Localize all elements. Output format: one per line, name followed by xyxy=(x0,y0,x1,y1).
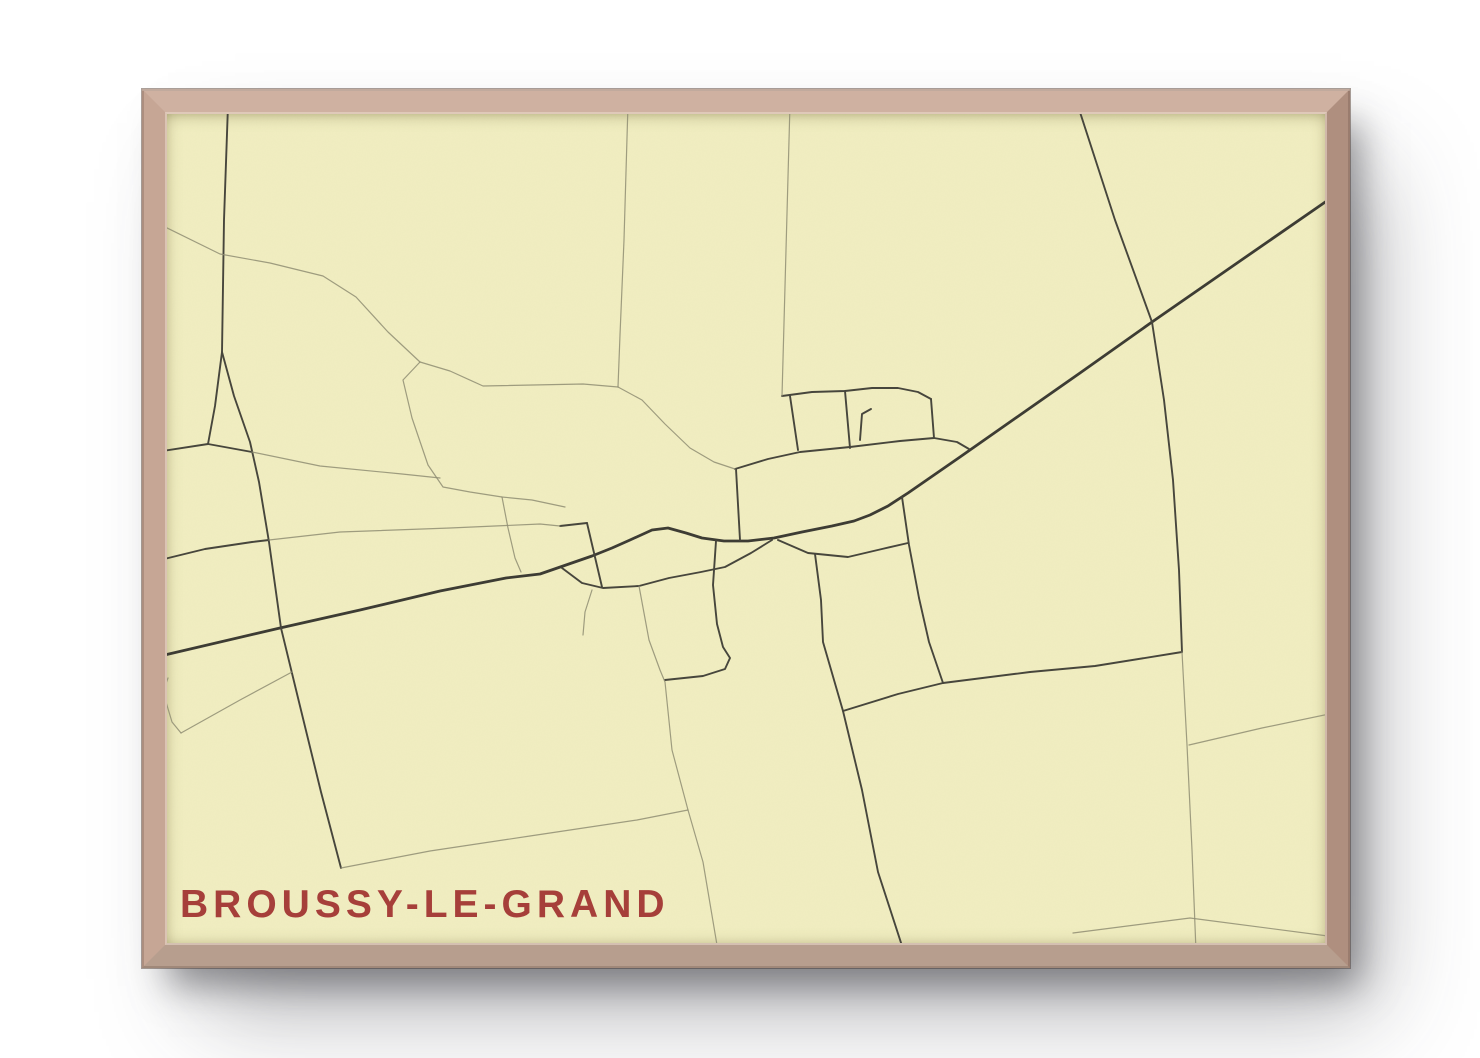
poster-title: BROUSSY-LE-GRAND xyxy=(180,883,670,927)
road-network xyxy=(167,114,1325,943)
paper-grain-texture xyxy=(167,114,1325,943)
map-poster: BROUSSY-LE-GRAND xyxy=(167,114,1325,943)
page-background: BROUSSY-LE-GRAND xyxy=(0,0,1480,1058)
picture-frame: BROUSSY-LE-GRAND xyxy=(142,89,1350,968)
